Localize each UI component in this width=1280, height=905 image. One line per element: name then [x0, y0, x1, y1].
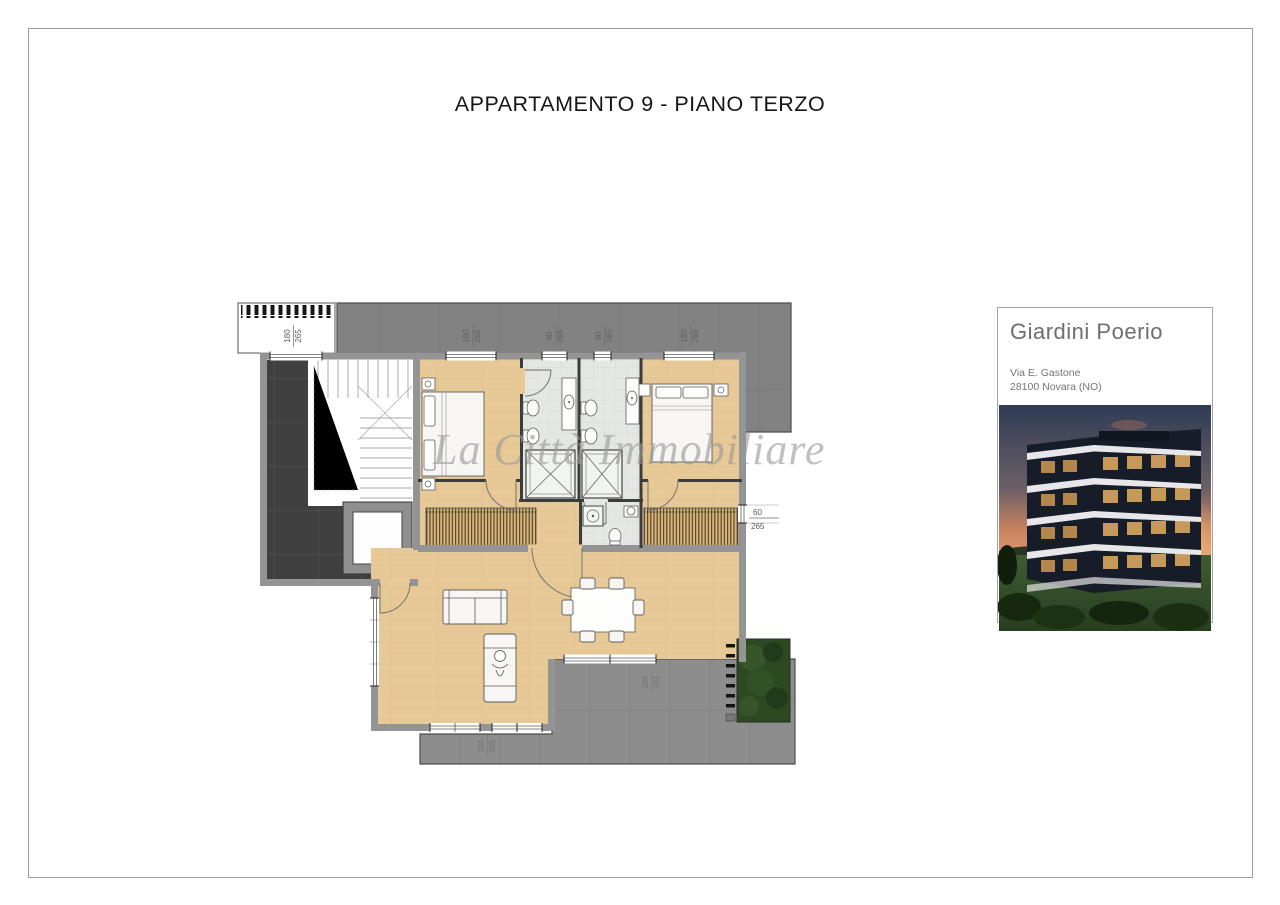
svg-text:60: 60: [594, 331, 603, 340]
svg-text:265: 265: [473, 329, 482, 343]
svg-text:180: 180: [680, 329, 689, 343]
svg-text:265: 265: [556, 329, 565, 343]
north-balcony: [238, 303, 335, 353]
floor-plan-drawing: 180 265 180 265 90 265 60 265 180 265 60: [230, 290, 810, 770]
svg-text:265: 265: [652, 675, 661, 689]
living-west-window: [370, 598, 379, 686]
svg-text:265: 265: [605, 329, 614, 343]
project-title: Giardini Poerio: [1010, 319, 1212, 345]
staircase: [308, 360, 412, 506]
svg-text:180: 180: [462, 329, 471, 343]
svg-text:180: 180: [283, 329, 292, 343]
balcony-door-window: [270, 352, 322, 361]
svg-text:300: 300: [641, 675, 650, 689]
bathroom-2-window: [594, 352, 611, 361]
bedroom-2-window: [664, 352, 714, 361]
bed-1: [422, 378, 484, 490]
shower-2: [582, 450, 622, 498]
dim-right-window: 60 265: [747, 505, 779, 531]
right-wall-window: [738, 505, 747, 523]
svg-text:265: 265: [751, 522, 765, 531]
building-photo: [998, 405, 1212, 631]
svg-text:265: 265: [294, 329, 303, 343]
page-title: APPARTAMENTO 9 - PIANO TERZO: [0, 92, 1280, 117]
svg-text:265: 265: [488, 739, 497, 753]
bathroom-1-window: [542, 352, 567, 361]
svg-text:240: 240: [477, 739, 486, 753]
floor-plan: 180 265 180 265 90 265 60 265 180 265 60: [230, 290, 810, 770]
person-figure: [495, 651, 506, 662]
chaise-with-person: [484, 634, 516, 702]
project-address-line1: Via E. Gastone: [1010, 366, 1212, 380]
balcony-grate: [241, 305, 331, 318]
svg-text:90: 90: [545, 331, 554, 340]
project-card: Giardini Poerio Via E. Gastone 28100 Nov…: [997, 307, 1213, 623]
bedroom-1-window: [446, 352, 496, 361]
svg-text:265: 265: [691, 329, 700, 343]
sofa: [443, 590, 507, 624]
project-address: Via E. Gastone 28100 Novara (NO): [1010, 366, 1212, 394]
terrace-sliding-door: [564, 655, 656, 664]
shower-1: [526, 450, 575, 498]
project-address-line2: 28100 Novara (NO): [1010, 380, 1212, 394]
svg-text:60: 60: [753, 508, 762, 517]
building: [1027, 429, 1201, 593]
